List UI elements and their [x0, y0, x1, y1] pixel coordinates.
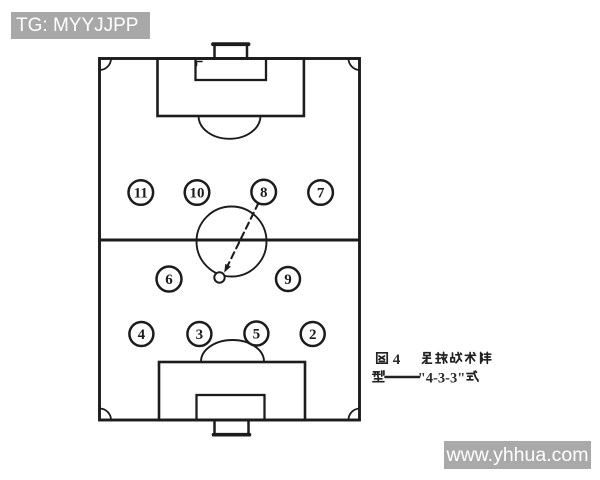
svg-text:10: 10: [190, 186, 205, 202]
svg-text:11: 11: [134, 186, 148, 202]
svg-text:8: 8: [260, 185, 268, 201]
svg-text:4: 4: [393, 352, 401, 368]
svg-text:2: 2: [309, 327, 317, 343]
svg-text:5: 5: [253, 327, 261, 343]
svg-text:9: 9: [284, 272, 292, 288]
svg-text:6: 6: [165, 272, 173, 288]
svg-text:7: 7: [317, 186, 325, 202]
svg-text:3: 3: [196, 327, 204, 343]
svg-text:4: 4: [138, 327, 146, 343]
svg-text:"4-3-3": "4-3-3": [418, 371, 466, 387]
